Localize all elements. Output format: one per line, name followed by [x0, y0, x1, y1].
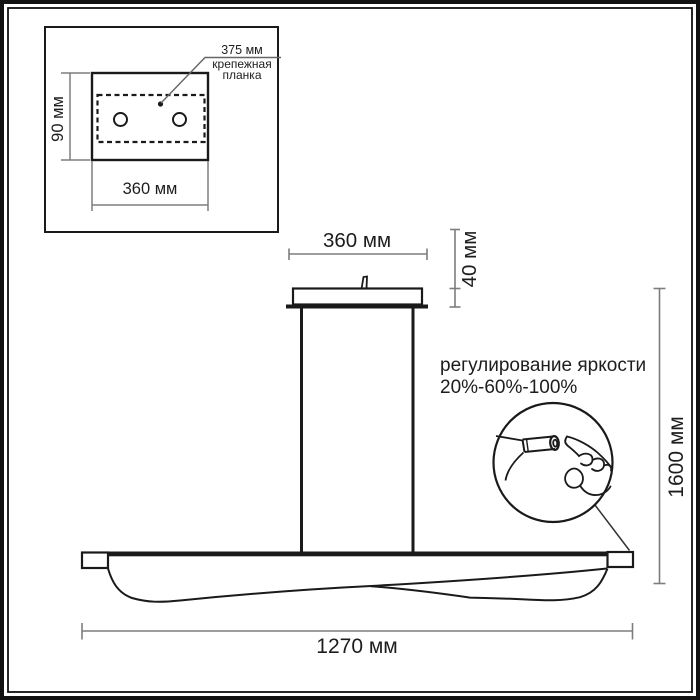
- canopy-screw-nub: [362, 277, 368, 290]
- inset-bracket-name: крепежная планка: [192, 59, 292, 80]
- overall-dim-1270-label: 1270 мм: [287, 635, 427, 659]
- detail-bubble: [494, 403, 630, 551]
- inset-plate-rect: [92, 73, 208, 160]
- detail-circle: [494, 403, 613, 522]
- brightness-note-line2: 20%-60%-100%: [440, 377, 680, 399]
- inset-hole-right-icon: [173, 113, 186, 126]
- end-cap-right: [608, 552, 634, 567]
- canopy-body: [293, 289, 422, 305]
- lamp-dimension-drawing: [0, 0, 700, 700]
- fixture-bar: [106, 552, 609, 557]
- inset-dim-90-label: 90 мм: [49, 84, 67, 154]
- canopy-base-plate: [286, 305, 428, 309]
- canopy-dim-360-label: 360 мм: [307, 229, 407, 253]
- canopy-dim-40-label: 40 мм: [458, 219, 482, 299]
- suspension-rod-left: [300, 308, 303, 553]
- inset-dim-360-label: 360 мм: [100, 180, 200, 199]
- overall-dim-1600-label: 1600 мм: [665, 402, 689, 512]
- end-cap-left: [82, 553, 108, 569]
- brightness-note: регулирование яркости 20%-60%-100%: [440, 355, 680, 398]
- dim-1600-line: [654, 289, 666, 584]
- inset-bracket-name-line2: планка: [192, 70, 292, 81]
- inset-dim-375-label: 375 мм: [192, 44, 292, 57]
- shade-left-curve: [108, 569, 607, 602]
- technical-drawing-page: 375 мм крепежная планка 90 мм 360 мм 360…: [0, 0, 700, 700]
- inset-hole-left-icon: [114, 113, 127, 126]
- brightness-note-line1: регулирование яркости: [440, 355, 680, 377]
- suspension-rod-right: [412, 308, 415, 553]
- detail-leader-line: [595, 505, 630, 551]
